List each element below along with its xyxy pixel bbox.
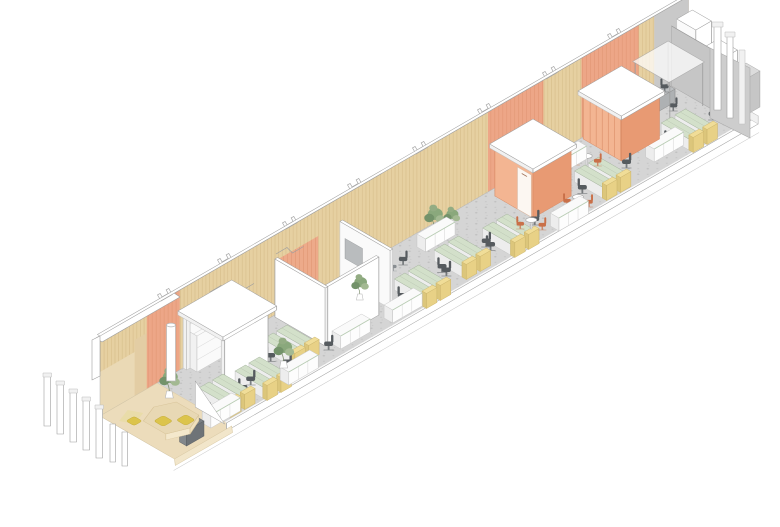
column <box>167 323 176 381</box>
roof-post-outline <box>92 336 100 380</box>
illustration-canvas <box>0 0 780 527</box>
axonometric-office-drawing <box>0 0 780 527</box>
right-facade-elements <box>710 22 750 138</box>
